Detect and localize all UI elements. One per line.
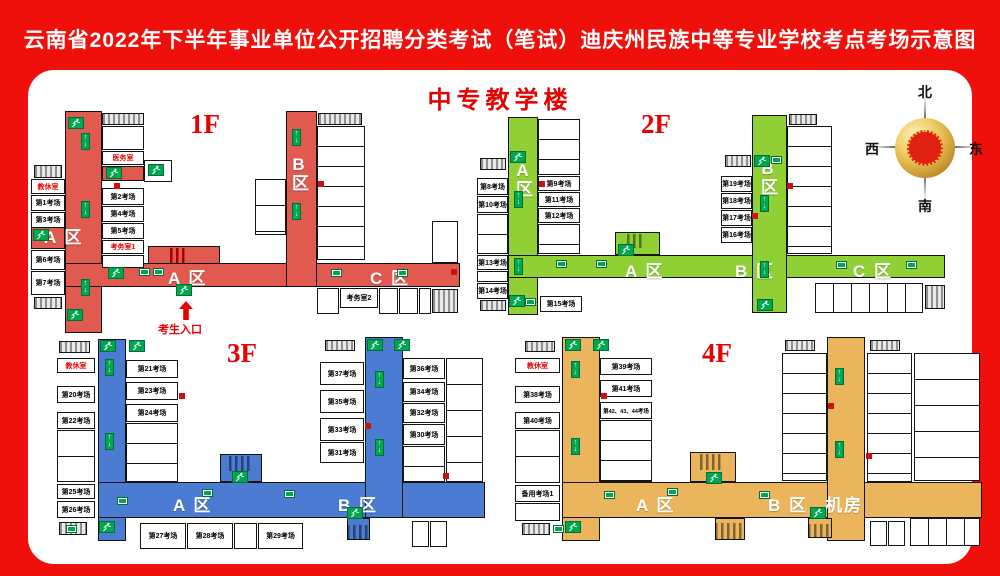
room-block — [403, 446, 445, 482]
exit-run-sign-icon — [176, 284, 192, 296]
room-block — [910, 518, 980, 546]
exit-run-sign-icon — [67, 309, 83, 321]
exit-door-marker-icon — [203, 490, 212, 496]
exit-stair-sign-icon — [760, 195, 769, 212]
zone-label-b: B 区 — [735, 257, 775, 282]
room-block — [538, 119, 580, 175]
floor-plan-3f: 3F 教休室 第20考场 第22考场 第25考场 第26考场 第21考场 第23… — [55, 333, 485, 560]
exam-room: 第8考场 — [477, 178, 508, 195]
exit-stair-sign-icon — [292, 203, 301, 220]
exit-run-sign-icon — [33, 229, 49, 241]
exit-stair-sign-icon — [105, 433, 114, 450]
spare-exam-room: 备用考场1 — [515, 485, 560, 502]
exit-stair-sign-icon — [81, 279, 90, 296]
exit-door-marker-icon — [760, 492, 769, 498]
exam-room: 第16考场 — [721, 227, 752, 243]
exam-room: 第30考场 — [403, 424, 445, 445]
room-block — [379, 288, 398, 314]
exit-run-sign-icon — [367, 339, 383, 351]
exit-door-marker-icon — [526, 299, 535, 305]
stairs-icon — [229, 456, 251, 471]
exit-stair-sign-icon — [571, 361, 580, 378]
exit-run-sign-icon — [757, 299, 773, 311]
zone-label-c: C 区 — [370, 264, 410, 289]
exam-room: 第6考场 — [31, 250, 65, 270]
exam-venue-map: { "banner": { "title": "云南省2022年下半年事业单位公… — [0, 0, 1000, 576]
exit-run-sign-icon — [129, 340, 145, 352]
stairs-hatch — [525, 341, 555, 352]
floor-label-2f: 2F — [641, 109, 671, 140]
stairs-hatch — [59, 341, 90, 353]
exit-door-marker-icon — [837, 262, 846, 268]
door-marker-icon — [318, 181, 324, 187]
corridor — [286, 111, 317, 287]
exam-room: 第39考场 — [600, 358, 652, 375]
exam-room: 第26考场 — [57, 501, 95, 518]
floor-label-3f: 3F — [227, 338, 257, 369]
exit-door-marker-icon — [154, 269, 163, 275]
exam-room: 第27考场 — [140, 523, 186, 549]
exit-stair-sign-icon — [514, 258, 523, 275]
rest-room: 教休室 — [31, 179, 65, 194]
exam-room: 第24考场 — [126, 404, 178, 422]
door-marker-icon — [179, 393, 185, 399]
exam-room: 第1考场 — [31, 195, 65, 211]
exit-run-sign-icon — [68, 117, 84, 129]
room-block — [477, 214, 508, 254]
exit-run-sign-icon — [565, 521, 581, 533]
room-block — [317, 288, 339, 314]
door-marker-icon — [114, 183, 120, 189]
room-block — [477, 271, 508, 282]
room-block — [255, 179, 286, 235]
corridor — [98, 482, 485, 518]
exam-room: 第12考场 — [538, 208, 580, 223]
room-block — [317, 126, 365, 260]
exit-stair-sign-icon — [375, 371, 384, 388]
stairs-icon — [700, 454, 724, 470]
rest-room: 教休室 — [515, 358, 560, 373]
corridor — [508, 117, 538, 315]
entrance-arrow-icon — [179, 301, 193, 320]
stairs-hatch — [789, 114, 817, 125]
exit-door-marker-icon — [557, 261, 566, 267]
rest-room: 教休室 — [57, 358, 95, 373]
medical-room: 医务室 — [102, 151, 144, 165]
exit-door-marker-icon — [285, 491, 294, 497]
exit-run-sign-icon — [810, 507, 826, 519]
door-marker-icon — [866, 453, 872, 459]
door-marker-icon — [828, 403, 834, 409]
exit-door-marker-icon — [67, 526, 76, 532]
stairs-icon — [715, 523, 745, 539]
room-block — [412, 521, 429, 547]
room-block — [914, 353, 980, 481]
exam-room: 第7考场 — [31, 271, 65, 295]
exam-room: 第37考场 — [320, 362, 364, 385]
compass-west-label: 西 — [865, 139, 879, 159]
exit-door-marker-icon — [140, 269, 149, 275]
zone-label-c: C 区 — [853, 257, 893, 282]
exam-room: 第4考场 — [102, 206, 144, 222]
exit-run-sign-icon — [593, 339, 609, 351]
exit-stair-sign-icon — [760, 261, 769, 278]
exit-stair-sign-icon — [571, 438, 580, 455]
exam-room: 第18考场 — [721, 193, 752, 209]
room-block — [815, 283, 923, 313]
stairs-hatch — [325, 340, 355, 351]
room-block — [419, 288, 431, 314]
exam-room: 第29考场 — [258, 523, 303, 549]
exit-run-sign-icon — [347, 507, 363, 519]
exam-room: 第42、43、44考场 — [600, 402, 652, 419]
exam-room: 第33考场 — [320, 418, 364, 441]
exam-room: 第15考场 — [540, 296, 582, 312]
exam-room: 第32考场 — [403, 403, 445, 423]
room-block — [538, 224, 580, 254]
room-block — [870, 521, 887, 546]
room-block — [515, 503, 560, 521]
stairs-hatch — [318, 113, 362, 125]
exam-room: 第11考场 — [538, 192, 580, 207]
floor-label-1f: 1F — [190, 109, 220, 140]
stairs-hatch — [480, 158, 506, 170]
door-marker-icon — [365, 423, 371, 429]
exam-room: 第38考场 — [515, 386, 560, 403]
school-emblem-icon — [907, 130, 943, 166]
exit-stair-sign-icon — [835, 441, 844, 458]
exit-door-marker-icon — [668, 489, 677, 495]
exit-door-marker-icon — [554, 526, 563, 532]
stairs-hatch — [480, 300, 506, 311]
exam-room: 第2考场 — [102, 188, 144, 205]
exam-room: 第10考场 — [477, 196, 508, 213]
exam-room: 第35考场 — [320, 390, 364, 413]
stairs-hatch — [785, 340, 815, 351]
exam-room: 第21考场 — [126, 360, 178, 378]
compass-east-label: 东 — [969, 139, 983, 159]
stairs-hatch — [102, 113, 144, 125]
room-block — [600, 420, 652, 482]
exit-door-marker-icon — [605, 492, 614, 498]
stairs-hatch — [522, 523, 550, 535]
floor-plan-1f: 1F 教休室 第1考场 第3考场 第6考场 第7考场 医务室 第2考场 第4考场… — [30, 103, 460, 335]
exit-door-marker-icon — [597, 261, 606, 267]
exam-room: 第25考场 — [57, 484, 95, 499]
room-block — [430, 521, 447, 547]
zone-label-b: B区 — [290, 155, 307, 191]
exam-room: 第28考场 — [187, 523, 233, 549]
exit-run-sign-icon — [108, 267, 124, 279]
exit-run-sign-icon — [106, 167, 122, 179]
exam-room: 第20考场 — [57, 386, 95, 403]
exit-stair-sign-icon — [292, 129, 301, 146]
exit-run-sign-icon — [706, 472, 722, 484]
floor-plan-4f: 4F 教休室 第38考场 第40考场 备用考场1 第39考场 第41考场 第42… — [510, 333, 990, 560]
exam-room: 第19考场 — [721, 176, 752, 192]
stairs-hatch — [725, 155, 751, 167]
exam-room: 第23考场 — [126, 382, 178, 400]
exit-stair-sign-icon — [375, 439, 384, 456]
exit-run-sign-icon — [510, 151, 526, 163]
exam-room: 第14考场 — [477, 283, 508, 299]
stairs-icon — [808, 524, 832, 538]
exam-room: 第34考场 — [403, 382, 445, 402]
room-block — [787, 126, 832, 254]
room-block — [102, 126, 144, 150]
exit-run-sign-icon — [565, 339, 581, 351]
compass-rose: 北 西 东 南 — [865, 82, 985, 212]
stairs-hatch — [34, 297, 62, 309]
exit-run-sign-icon — [754, 155, 770, 167]
exam-room: 第5考场 — [102, 223, 144, 239]
exit-door-marker-icon — [118, 498, 127, 504]
room-block — [126, 423, 178, 482]
room-block — [867, 353, 912, 482]
machine-room-label: 机房 — [825, 491, 863, 516]
door-marker-icon — [539, 181, 545, 187]
exam-office-room: 考务室2 — [340, 288, 378, 308]
zone-label-b: B 区 — [768, 491, 808, 516]
room-block — [446, 358, 483, 482]
exit-run-sign-icon — [148, 164, 164, 176]
banner-title: 云南省2022年下半年事业单位公开招聘分类考试（笔试）迪庆州民族中等专业学校考点… — [0, 24, 1000, 54]
stairs-hatch — [925, 285, 945, 309]
exam-office-room: 考务室1 — [102, 240, 144, 254]
exit-stair-sign-icon — [81, 201, 90, 218]
exam-room: 第31考场 — [320, 442, 364, 463]
exit-stair-sign-icon — [81, 133, 90, 150]
stairs-icon — [347, 525, 370, 540]
exam-room: 第17考场 — [721, 210, 752, 226]
exam-room: 第40考场 — [515, 412, 560, 429]
stairs-hatch — [34, 165, 62, 178]
room-block — [399, 288, 418, 314]
stairs-icon — [170, 248, 188, 263]
exam-room: 第22考场 — [57, 412, 95, 429]
exam-room: 第36考场 — [403, 358, 445, 379]
exit-run-sign-icon — [618, 244, 634, 256]
stairs-hatch — [870, 340, 900, 351]
room-block — [888, 521, 905, 546]
exam-room: 第41考场 — [600, 380, 652, 397]
exit-door-marker-icon — [772, 157, 781, 163]
exit-stair-sign-icon — [105, 359, 114, 376]
floor-label-4f: 4F — [702, 338, 732, 369]
door-marker-icon — [752, 213, 758, 219]
room-block — [782, 353, 827, 481]
exit-door-marker-icon — [332, 270, 341, 276]
exit-run-sign-icon — [99, 521, 115, 533]
room-block — [515, 430, 560, 483]
exit-run-sign-icon — [232, 471, 248, 483]
room-block — [57, 430, 95, 482]
exam-room: 第13考场 — [477, 255, 508, 270]
exit-run-sign-icon — [100, 340, 116, 352]
exit-stair-sign-icon — [514, 191, 523, 208]
exit-stair-sign-icon — [835, 368, 844, 385]
door-marker-icon — [787, 183, 793, 189]
exit-run-sign-icon — [509, 295, 525, 307]
room-block — [234, 523, 257, 549]
zone-label-a: A 区 — [625, 257, 664, 282]
exit-door-marker-icon — [398, 270, 407, 276]
door-marker-icon — [443, 473, 449, 479]
exit-run-sign-icon — [394, 339, 410, 351]
zone-label-a: A 区 — [44, 223, 83, 248]
door-marker-icon — [601, 393, 607, 399]
exit-door-marker-icon — [907, 262, 916, 268]
